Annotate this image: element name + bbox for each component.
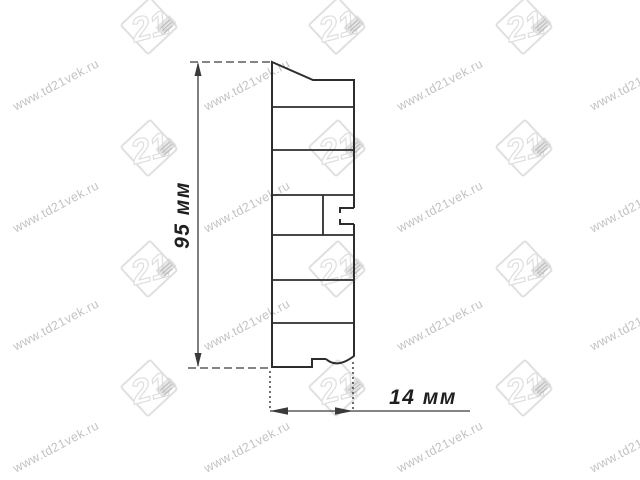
technical-drawing-page: www.td21vek.ruwww.td21vek.ruwww.td21vek.… [0, 0, 640, 480]
profile-slot-upper-lip [340, 208, 354, 213]
profile-cross-section-drawing [0, 0, 640, 480]
width-dimension-label: 14 мм [389, 386, 457, 410]
arrowhead-up [195, 62, 202, 76]
profile-bottom-right-cove [326, 224, 354, 363]
profile-slot-lower-lip [340, 219, 354, 224]
height-dimension-label: 95 мм [171, 181, 195, 249]
arrowhead-left [270, 407, 288, 415]
arrowhead-down [195, 353, 202, 367]
arrowhead-right [335, 407, 353, 415]
